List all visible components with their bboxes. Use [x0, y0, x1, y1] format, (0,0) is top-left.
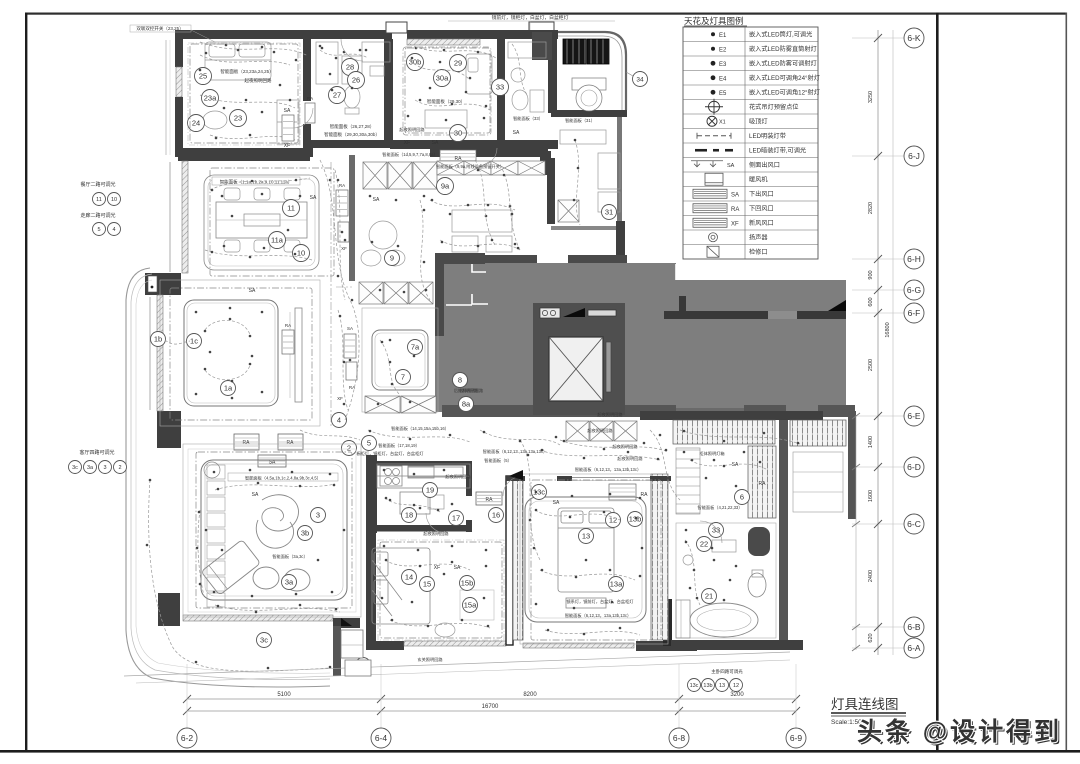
svg-text:新风风口: 新风风口: [749, 219, 774, 227]
svg-text:LED明装灯带: LED明装灯带: [749, 132, 786, 140]
svg-text:2820: 2820: [868, 202, 874, 214]
svg-text:起夜照明回路: 起夜照明回路: [399, 126, 425, 133]
svg-text:嵌入式LED筒灯,可调光: 嵌入式LED筒灯,可调光: [749, 31, 812, 39]
svg-text:18: 18: [405, 511, 413, 520]
svg-text:23: 23: [234, 114, 242, 123]
svg-text:7: 7: [401, 373, 405, 382]
svg-text:4: 4: [337, 416, 341, 425]
svg-text:15: 15: [423, 580, 431, 589]
svg-text:8a: 8a: [462, 400, 471, 409]
svg-text:15a: 15a: [464, 601, 477, 610]
svg-text:6-B: 6-B: [907, 622, 921, 632]
svg-text:智能面板（26,27,28）: 智能面板（26,27,28）: [330, 123, 375, 130]
svg-text:SA: SA: [249, 288, 256, 294]
svg-text:23a: 23a: [204, 94, 217, 103]
svg-text:9: 9: [390, 254, 394, 263]
svg-text:6-9: 6-9: [790, 733, 803, 743]
svg-text:XF: XF: [434, 565, 440, 571]
svg-text:29: 29: [454, 59, 462, 68]
svg-text:嵌入式LED可调角24°射灯: 嵌入式LED可调角24°射灯: [749, 74, 820, 82]
svg-text:起夜照明回路: 起夜照明回路: [587, 427, 613, 434]
svg-text:34: 34: [636, 76, 644, 83]
svg-text:RA: RA: [349, 385, 355, 390]
svg-text:6: 6: [740, 493, 744, 502]
svg-text:餐厅二路可调光: 餐厅二路可调光: [80, 181, 115, 188]
svg-text:30b: 30b: [409, 58, 422, 67]
svg-text:柜体照明灯箱: 柜体照明灯箱: [699, 450, 724, 457]
svg-text:镜前灯，镜柜灯，白盆灯，白盆柜灯: 镜前灯，镜柜灯，白盆灯，白盆柜灯: [492, 14, 569, 21]
svg-text:10: 10: [297, 249, 305, 258]
svg-text:3250: 3250: [868, 91, 874, 103]
svg-text:起夜照明回路: 起夜照明回路: [612, 443, 638, 450]
svg-text:SA: SA: [731, 192, 739, 198]
svg-text:智能面板（6,12,13，13a,13b,13c）: 智能面板（6,12,13，13a,13b,13c）: [565, 612, 631, 619]
svg-text:智能面板（14,15,15a,15b,16）: 智能面板（14,15,15a,15b,16）: [391, 425, 449, 432]
svg-text:2: 2: [118, 465, 121, 471]
svg-text:25: 25: [199, 72, 207, 81]
svg-text:30a: 30a: [436, 74, 449, 83]
svg-text:XF: XF: [341, 246, 347, 251]
svg-text:智能面板（1,1a,1b,2a,9,10,11,11a）: 智能面板（1,1a,1b,2a,9,10,11,11a）: [220, 179, 293, 186]
svg-text:13c: 13c: [690, 683, 699, 689]
svg-text:E3: E3: [719, 62, 727, 68]
svg-text:28: 28: [346, 63, 354, 72]
svg-text:镜系灯，镜前灯，台盆灯，台盆柜灯: 镜系灯，镜前灯，台盆灯，台盆柜灯: [566, 598, 634, 605]
svg-text:SA: SA: [373, 197, 380, 203]
svg-text:XF: XF: [404, 140, 410, 146]
svg-text:6-E: 6-E: [907, 411, 921, 421]
svg-text:头条 @设计得到: 头条 @设计得到: [857, 718, 1059, 746]
svg-text:RA: RA: [285, 323, 291, 328]
svg-text:嵌入式LED防雾直筒射灯: 嵌入式LED防雾直筒射灯: [749, 45, 817, 53]
svg-text:17: 17: [452, 514, 460, 523]
svg-text:1600: 1600: [868, 490, 874, 502]
svg-text:智能面板（4,21,22,33）: 智能面板（4,21,22,33）: [698, 504, 743, 511]
svg-text:6-8: 6-8: [673, 733, 686, 743]
svg-text:起夜照明回路: 起夜照明回路: [423, 530, 449, 537]
svg-text:E1: E1: [719, 33, 727, 39]
svg-text:3: 3: [103, 465, 106, 471]
svg-text:620: 620: [868, 633, 874, 642]
svg-text:11: 11: [287, 204, 295, 213]
svg-text:2: 2: [347, 444, 351, 453]
svg-text:起夜照明回路: 起夜照明回路: [445, 473, 471, 480]
svg-text:RA: RA: [307, 96, 313, 101]
svg-text:15b: 15b: [461, 579, 474, 588]
svg-text:8200: 8200: [523, 692, 537, 698]
svg-text:XF: XF: [284, 143, 290, 149]
svg-text:13b: 13b: [629, 515, 642, 524]
svg-text:灯具连线图: 灯具连线图: [831, 697, 899, 712]
svg-text:22: 22: [700, 540, 708, 549]
svg-text:8: 8: [458, 376, 462, 385]
svg-text:E4: E4: [719, 76, 727, 82]
svg-text:X1: X1: [719, 119, 726, 125]
svg-text:RA: RA: [486, 497, 494, 503]
svg-text:4: 4: [112, 227, 115, 233]
svg-text:橱柜灯，镜柜灯，台盆灯，台盆柜灯: 橱柜灯，镜柜灯，台盆灯，台盆柜灯: [356, 450, 424, 457]
svg-text:26: 26: [352, 76, 360, 85]
svg-text:24: 24: [192, 119, 200, 128]
svg-text:6-A: 6-A: [907, 643, 921, 653]
svg-text:XF: XF: [337, 396, 343, 401]
svg-text:E5: E5: [719, 91, 727, 97]
svg-text:客厅四路可调光: 客厅四路可调光: [79, 449, 114, 456]
svg-text:13a: 13a: [610, 580, 623, 589]
svg-text:13: 13: [719, 683, 725, 689]
svg-text:19: 19: [426, 486, 434, 495]
svg-text:3c: 3c: [72, 465, 78, 471]
svg-text:走廊二路可调光: 走廊二路可调光: [80, 212, 115, 219]
svg-text:智能面板（23,23a,24,25）: 智能面板（23,23a,24,25）: [220, 68, 273, 75]
svg-text:1c: 1c: [190, 337, 198, 346]
svg-text:主卧四路可调光: 主卧四路可调光: [711, 668, 743, 675]
svg-text:RA: RA: [731, 207, 739, 213]
svg-text:6-D: 6-D: [907, 462, 921, 472]
svg-text:起夜照明回路: 起夜照明回路: [245, 77, 272, 84]
svg-text:16: 16: [492, 511, 500, 520]
svg-text:3: 3: [316, 511, 320, 520]
svg-text:下出风口: 下出风口: [749, 190, 774, 198]
svg-text:1a: 1a: [224, 384, 233, 393]
svg-text:扬声器: 扬声器: [749, 234, 768, 242]
svg-text:嵌入式LED可调角12°射灯: 嵌入式LED可调角12°射灯: [749, 89, 820, 97]
svg-text:12: 12: [733, 683, 739, 689]
svg-text:RA: RA: [339, 183, 345, 188]
svg-text:智能面板（29,30,30a,30b）: 智能面板（29,30,30a,30b）: [324, 131, 380, 138]
svg-text:5100: 5100: [277, 692, 291, 698]
svg-text:6-2: 6-2: [181, 733, 194, 743]
svg-text:2500: 2500: [868, 359, 874, 371]
svg-text:11: 11: [96, 197, 102, 203]
svg-text:检修口: 检修口: [749, 248, 768, 256]
svg-text:智能面板（17,18,19）: 智能面板（17,18,19）: [378, 442, 419, 449]
svg-text:玄关照明回路: 玄关照明回路: [417, 656, 443, 663]
svg-text:下回风口: 下回风口: [749, 206, 774, 213]
svg-text:3c: 3c: [260, 636, 268, 645]
svg-text:SA: SA: [553, 500, 560, 506]
svg-text:E2: E2: [719, 47, 727, 53]
svg-text:11a: 11a: [271, 236, 284, 245]
svg-text:6-H: 6-H: [907, 254, 921, 264]
svg-text:智能面板（4,5a,1b,1c,2,4,8a,9b,3c,4: 智能面板（4,5a,1b,1c,2,4,8a,9b,3c,4,5）: [245, 475, 321, 482]
svg-text:21: 21: [705, 592, 713, 601]
svg-text:SA: SA: [310, 195, 317, 201]
svg-text:2400: 2400: [868, 570, 874, 582]
svg-text:1400: 1400: [868, 436, 874, 448]
svg-text:智能面板（6,12,13，13a,13b,13c）: 智能面板（6,12,13，13a,13b,13c）: [575, 466, 641, 473]
svg-text:6-4: 6-4: [375, 733, 388, 743]
svg-text:RA: RA: [759, 481, 767, 487]
svg-text:3b: 3b: [301, 529, 309, 538]
svg-text:智能面板（9,9a,附线设备预留开关）: 智能面板（9,9a,附线设备预留开关）: [436, 163, 504, 170]
svg-text:10: 10: [111, 197, 117, 203]
svg-text:27: 27: [333, 91, 341, 100]
svg-text:智能面板（3a,3c）: 智能面板（3a,3c）: [272, 553, 307, 560]
svg-text:1b: 1b: [154, 335, 162, 344]
svg-text:智能面板（5）: 智能面板（5）: [484, 457, 511, 464]
svg-text:14: 14: [405, 573, 413, 582]
svg-text:双联双控开关（23,25）: 双联双控开关（23,25）: [136, 25, 183, 32]
svg-text:33: 33: [712, 526, 720, 535]
svg-text:6-J: 6-J: [908, 151, 920, 161]
svg-text:9a: 9a: [441, 182, 450, 191]
svg-text:12: 12: [609, 516, 617, 525]
svg-text:600: 600: [868, 297, 874, 306]
svg-text:智能面板（33）: 智能面板（33）: [513, 115, 543, 122]
svg-text:RA: RA: [243, 440, 251, 446]
svg-text:XF: XF: [731, 221, 739, 227]
svg-text:天花及灯具图例: 天花及灯具图例: [684, 16, 744, 26]
svg-text:13: 13: [582, 532, 590, 541]
svg-text:6-C: 6-C: [907, 519, 921, 529]
svg-text:5: 5: [97, 227, 100, 233]
svg-text:31: 31: [605, 208, 613, 217]
svg-text:3a: 3a: [87, 465, 94, 471]
svg-text:后排照明回路: 后排照明回路: [459, 387, 483, 393]
svg-text:SA: SA: [513, 130, 520, 136]
svg-text:SA: SA: [347, 326, 353, 331]
svg-text:SA: SA: [732, 462, 739, 468]
svg-text:吸顶灯: 吸顶灯: [749, 118, 768, 126]
svg-text:暖风机: 暖风机: [749, 176, 768, 184]
svg-text:起夜照明回路: 起夜照明回路: [597, 411, 623, 418]
svg-text:RA: RA: [641, 492, 649, 498]
svg-text:5: 5: [367, 439, 371, 448]
svg-text:RA: RA: [287, 440, 295, 446]
svg-text:16800: 16800: [885, 322, 891, 337]
svg-text:SA: SA: [252, 492, 259, 498]
svg-text:侧面出风口: 侧面出风口: [749, 161, 780, 169]
svg-text:LED暗装灯带,可调光: LED暗装灯带,可调光: [749, 147, 806, 155]
svg-text:嵌入式LED防雾可调射灯: 嵌入式LED防雾可调射灯: [749, 60, 817, 68]
svg-text:智能面板（1d,5,9,7,7a,8,8a）: 智能面板（1d,5,9,7,7a,8,8a）: [382, 151, 437, 158]
svg-text:SA: SA: [432, 140, 439, 146]
svg-text:智能面板（29,30）: 智能面板（29,30）: [427, 98, 465, 105]
svg-text:16700: 16700: [482, 704, 499, 710]
svg-text:3a: 3a: [285, 578, 294, 587]
svg-text:3200: 3200: [730, 692, 744, 698]
svg-text:13b: 13b: [703, 683, 712, 689]
svg-text:6-F: 6-F: [908, 308, 921, 318]
svg-text:SA: SA: [284, 108, 291, 114]
svg-text:智能面板（6,12,13.,13a,13a,13c）: 智能面板（6,12,13.,13a,13a,13c）: [483, 448, 547, 455]
svg-text:33: 33: [496, 83, 504, 92]
svg-text:6-K: 6-K: [907, 33, 921, 43]
svg-text:智能面板（31）: 智能面板（31）: [565, 117, 595, 124]
svg-text:6-G: 6-G: [907, 285, 921, 295]
svg-text:900: 900: [868, 270, 874, 279]
svg-text:花式吊灯预留点位: 花式吊灯预留点位: [749, 103, 799, 111]
svg-text:7a: 7a: [411, 343, 420, 352]
svg-text:SA: SA: [727, 163, 735, 169]
